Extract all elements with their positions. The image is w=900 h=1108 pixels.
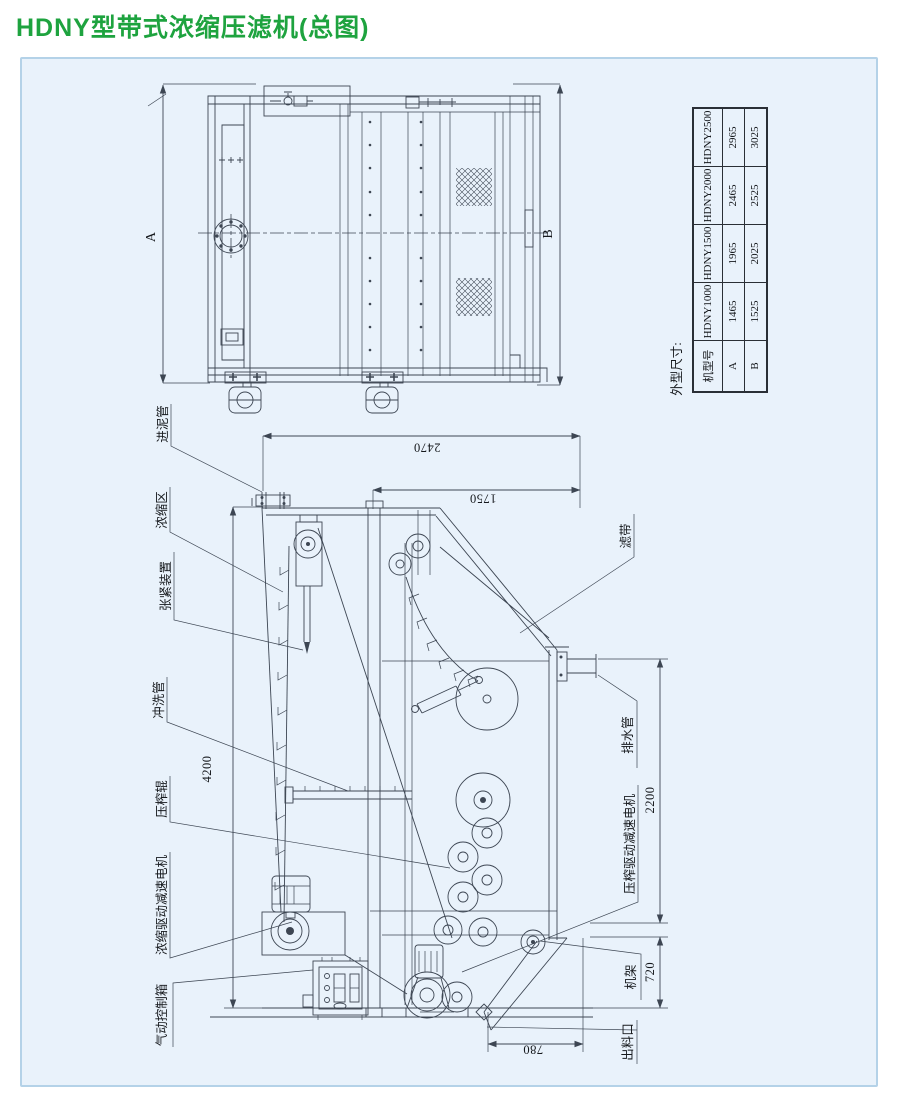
thickening-drive-motor — [262, 876, 345, 955]
dim-press-section-length: 1750 — [470, 492, 497, 505]
dim-total-length: 2470 — [414, 441, 441, 454]
label-tensioning-device: 张紧装置 — [160, 561, 173, 611]
spec-table-row-a: A 1465 1965 2465 2965 — [722, 108, 744, 392]
hatch-area — [456, 168, 492, 206]
side-view-drawing — [167, 404, 668, 1064]
spec-table: 机型号 HDNY1000 HDNY1500 HDNY2000 HDNY2500 … — [692, 115, 768, 393]
label-filter-belt: 滤带 — [620, 523, 633, 548]
catalog-page: HDNY型带式浓缩压滤机(总图) — [0, 0, 900, 1108]
top-view-drawing — [148, 84, 560, 413]
dim-total-height: 4200 — [201, 756, 214, 783]
label-thickening-drive-motor: 浓缩驱动减速电机 — [156, 855, 169, 955]
belt-flights — [409, 594, 478, 687]
label-pneumatic-control-box: 气动控制箱 — [156, 984, 169, 1047]
machine-foot — [229, 382, 261, 413]
dim-label-a: A — [145, 232, 159, 242]
press-rollers — [434, 773, 510, 1012]
spec-cell: 3025 — [744, 108, 767, 167]
label-outlet: 出料口 — [622, 1023, 635, 1061]
spec-table-row-b: B 1525 2025 2525 3025 — [744, 108, 767, 392]
spec-row-b-label: B — [744, 341, 767, 393]
spec-row-a-label: A — [722, 341, 744, 393]
inlet-pipe-fitting — [252, 492, 290, 509]
bolt-dots — [369, 121, 423, 352]
label-thickening-zone: 浓缩区 — [156, 491, 169, 529]
spec-cell: 1465 — [722, 283, 744, 341]
spec-cell: 2525 — [744, 167, 767, 225]
spec-table-header-row: 机型号 HDNY1000 HDNY1500 HDNY2000 HDNY2500 — [693, 108, 722, 392]
leader-lines — [167, 404, 641, 1064]
press-drive-motor — [404, 945, 468, 1018]
hydraulic-cylinder — [412, 677, 483, 714]
top-valve-assembly — [264, 86, 350, 116]
tensioner-assembly — [294, 515, 322, 654]
spec-cell: 1525 — [744, 283, 767, 341]
spec-cell: 2965 — [722, 108, 744, 167]
spec-cell: 2025 — [744, 225, 767, 283]
spec-col-hdny1500: HDNY1500 — [693, 225, 722, 283]
spec-col-hdny2000: HDNY2000 — [693, 167, 722, 225]
flush-pipe — [285, 786, 412, 803]
machine-foot — [366, 382, 398, 413]
label-frame: 机架 — [625, 964, 638, 989]
dim-base-height: 720 — [644, 962, 657, 982]
spec-col-model: 机型号 — [693, 341, 722, 393]
spec-cell: 1965 — [722, 225, 744, 283]
hatch-area — [456, 278, 492, 316]
dim-outlet-width: 780 — [523, 1043, 543, 1056]
discharge-chute — [476, 930, 567, 1030]
top-fitting — [406, 97, 456, 108]
label-flush-pipe: 冲洗管 — [153, 681, 166, 719]
dim-press-section-height: 2200 — [644, 787, 657, 814]
pneumatic-control-box — [303, 957, 368, 1020]
label-drain-pipe: 排水管 — [622, 716, 635, 754]
spec-col-hdny2500: HDNY2500 — [693, 108, 722, 167]
spec-col-hdny1000: HDNY1000 — [693, 283, 722, 341]
drum-roller — [456, 668, 518, 730]
label-inlet-pipe: 进泥管 — [157, 405, 170, 443]
label-press-roller: 压榨辊 — [156, 780, 169, 818]
drain-pipe-fitting — [557, 652, 596, 681]
dim-label-b: B — [542, 229, 556, 238]
spec-table-caption: 外型尺寸: — [671, 342, 684, 395]
spec-cell: 2465 — [722, 167, 744, 225]
label-press-drive-motor: 压榨驱动减速电机 — [624, 794, 637, 894]
flange-circle — [214, 214, 248, 258]
